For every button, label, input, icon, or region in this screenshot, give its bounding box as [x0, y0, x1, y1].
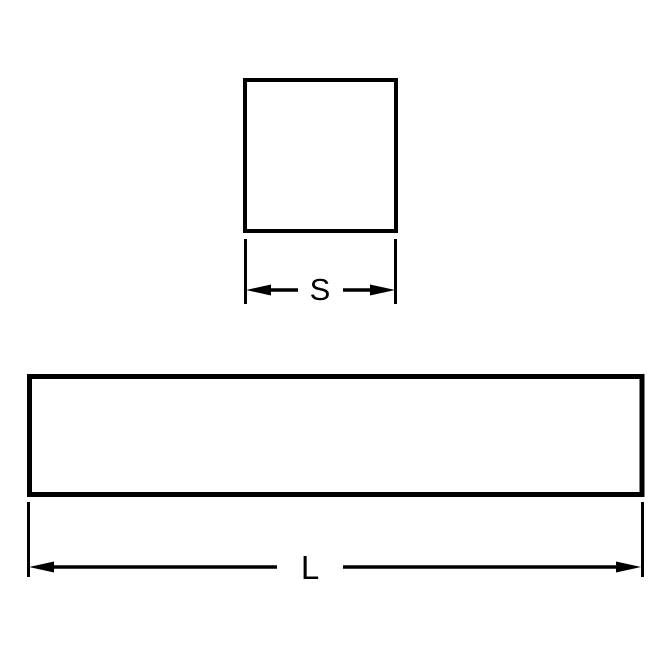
s-arrowhead-left-icon: [246, 285, 271, 296]
bar-outline: [30, 377, 643, 495]
s-dimension-label: S: [310, 272, 331, 307]
l-dimension-label: L: [301, 549, 319, 586]
bar-length-view: L: [29, 377, 643, 587]
l-arrowhead-right-icon: [616, 562, 641, 573]
square-outline: [245, 80, 396, 231]
diagram-canvas: S L: [0, 0, 670, 670]
s-arrowhead-right-icon: [370, 285, 395, 296]
keystock-technical-drawing: S L: [0, 0, 670, 670]
l-arrowhead-left-icon: [29, 562, 54, 573]
square-cross-section-view: S: [245, 80, 396, 307]
